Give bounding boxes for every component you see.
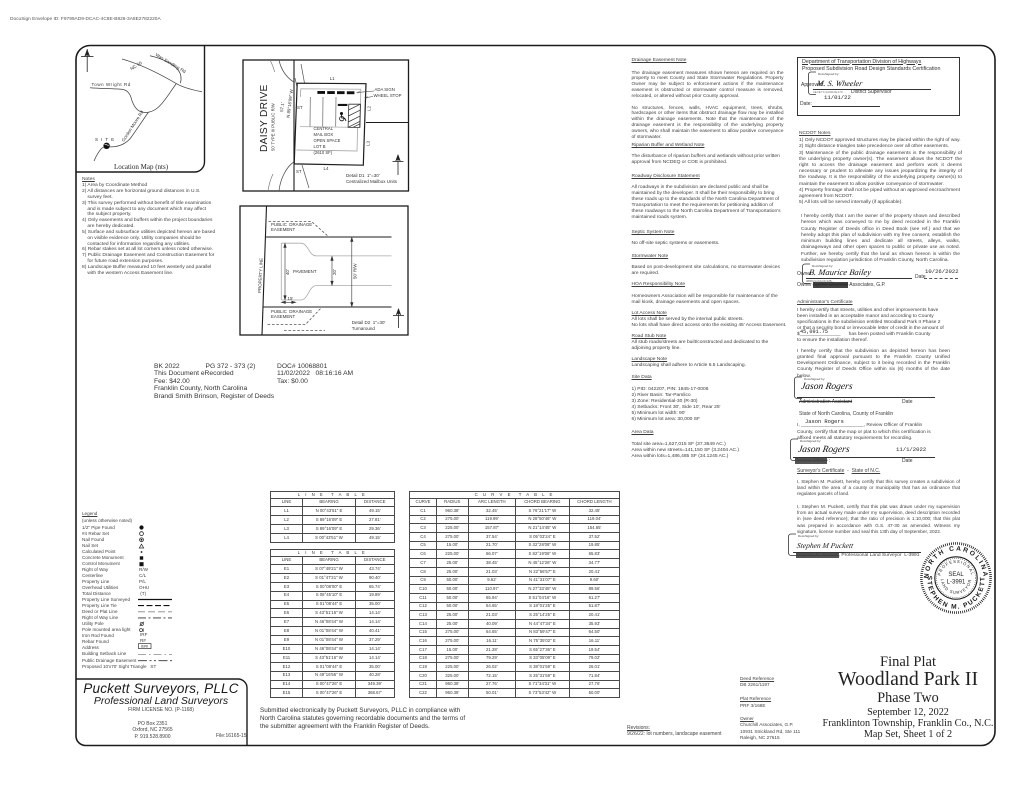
svg-text:DocuSigned by:: DocuSigned by: — [798, 534, 819, 538]
svg-text:Gordon Moore Rd: Gordon Moore Rd — [121, 109, 145, 142]
svg-text:40': 40' — [285, 269, 290, 275]
svg-text:L3: L3 — [366, 140, 371, 146]
svg-text:57.1': 57.1' — [279, 102, 285, 112]
svg-text:L-3991: L-3991 — [947, 580, 966, 586]
svg-text:SEAL: SEAL — [948, 572, 964, 578]
svg-text:50' TYPE III PUBLIC R/W: 50' TYPE III PUBLIC R/W — [271, 103, 276, 151]
svg-text:Was Sandling Rd: Was Sandling Rd — [154, 52, 187, 74]
svg-text:N 89°16'09" W: N 89°16'09" W — [286, 88, 295, 118]
svg-text:50' R/W: 50' R/W — [353, 263, 358, 279]
svg-text:DocuSigned by:: DocuSigned by: — [800, 439, 821, 443]
svg-text:20': 20' — [332, 269, 337, 275]
svg-text:L2: L2 — [367, 105, 372, 111]
svg-text:PROPERTY LINE: PROPERTY LINE — [257, 258, 264, 293]
svg-text:DocuSigned by:: DocuSigned by: — [804, 377, 825, 381]
svg-text:DAISY DRIVE: DAISY DRIVE — [259, 84, 270, 152]
svg-text:DocuSigned by:: DocuSigned by: — [818, 72, 839, 76]
